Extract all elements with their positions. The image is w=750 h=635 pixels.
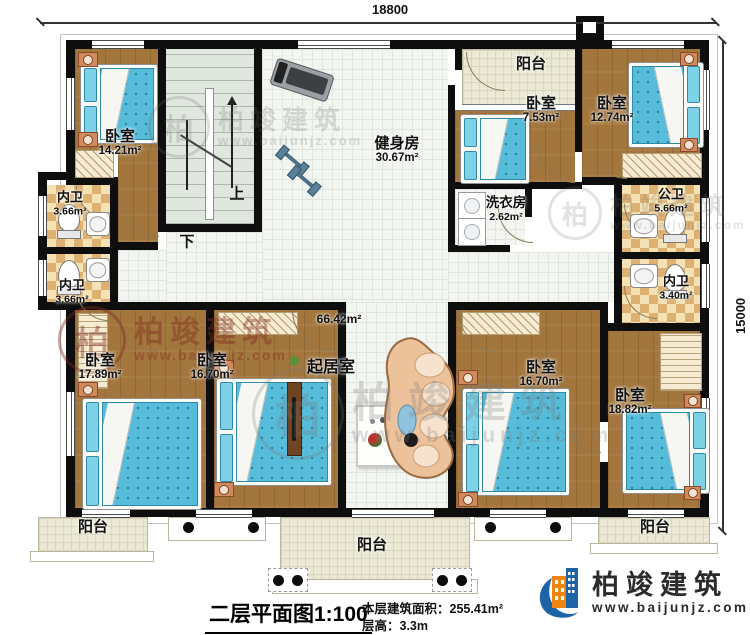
floor-plan-canvas: 卧室 14.21m² 健身房 30.67m² 阳台 卧室 7.53m² 卧室 1… <box>0 0 750 635</box>
room-label-gym: 健身房 30.67m² <box>374 135 419 165</box>
dimension-height: 15000 <box>733 298 748 334</box>
room-label-bedroom-bottom-midleft: 卧室 16.70m² <box>191 352 234 382</box>
plan-title: 二层平面图1:100 <box>205 598 372 634</box>
column-icon <box>550 522 561 533</box>
nightstand <box>684 394 701 408</box>
balcony-bottom-right-step <box>590 543 718 554</box>
bed <box>460 114 530 184</box>
wall <box>600 462 608 508</box>
room-label-bedroom-top-right: 卧室 12.74m² <box>591 95 634 125</box>
sink-icon <box>630 214 658 238</box>
wall <box>575 40 582 152</box>
closet <box>218 312 298 335</box>
dimension-width: 18800 <box>372 2 408 17</box>
closet <box>622 153 702 178</box>
brand-site: www.baijunjz.com <box>592 600 749 615</box>
window <box>490 509 546 518</box>
dimension-line-top <box>40 22 716 24</box>
room-label-balcony-bottom-center: 阳台 <box>357 536 387 553</box>
room-label-laundry: 洗衣房 2.62m² <box>486 195 527 223</box>
nightstand <box>680 138 698 152</box>
window <box>701 198 710 242</box>
porch-column-pair <box>432 568 472 592</box>
room-label-bedroom-bottom-right: 卧室 18.82m² <box>609 387 652 417</box>
dimension-line-right <box>722 40 724 532</box>
wall <box>110 185 118 302</box>
room-label-living: 起居室 <box>307 359 355 377</box>
room-label-bedroom-top-mid: 卧室 7.53m² <box>523 95 559 125</box>
porch-column-pair <box>268 568 308 592</box>
room-label-bedroom-bottom-left: 卧室 17.89m² <box>79 352 122 382</box>
sink-icon <box>630 264 658 288</box>
room-label-living-area: 66.42m² <box>317 313 362 327</box>
wall <box>66 177 118 185</box>
person-head <box>404 433 418 447</box>
wall <box>455 40 462 70</box>
window <box>38 260 47 296</box>
nightstand <box>78 132 98 147</box>
wall <box>448 245 510 252</box>
window <box>196 509 252 518</box>
room-label-bath-left-upper: 内卫 3.66m² <box>53 191 86 218</box>
wall <box>614 259 622 323</box>
window <box>92 40 144 49</box>
floor-height-text: 层高：3.3m <box>362 615 428 634</box>
floor-hall-left <box>118 250 166 302</box>
room-label-bath-right: 内卫 3.40m² <box>659 275 692 302</box>
plant-icon <box>289 356 299 366</box>
brand-logo-icon <box>538 566 584 620</box>
balcony-bottom-left-step <box>30 551 154 562</box>
brand-name: 柏竣建筑 <box>592 571 749 599</box>
wall <box>158 40 166 232</box>
bed <box>216 378 332 486</box>
room-label-balcony-bottom-right: 阳台 <box>640 518 670 535</box>
window <box>628 509 684 518</box>
wall <box>614 185 622 252</box>
patio-door <box>352 509 434 518</box>
nightstand <box>78 382 98 397</box>
brand-logo: 柏竣建筑 www.baijunjz.com <box>538 566 749 620</box>
nightstand <box>78 52 98 67</box>
wall <box>206 310 214 508</box>
wall <box>338 302 346 508</box>
person-body <box>398 405 416 435</box>
wall <box>600 323 709 331</box>
wall <box>254 40 262 232</box>
bed <box>628 62 704 148</box>
bed <box>462 388 570 496</box>
stairs-up-label: 上 <box>229 183 244 204</box>
nightstand <box>458 370 478 385</box>
wall <box>448 302 608 310</box>
window <box>66 392 75 456</box>
wall <box>582 177 709 185</box>
room-label-balcony-bottom-left: 阳台 <box>78 518 108 535</box>
room-label-balcony-top: 阳台 <box>516 55 546 72</box>
wall <box>614 252 709 259</box>
washer-icon <box>458 218 486 246</box>
nightstand <box>680 52 698 66</box>
chimney-inner <box>583 22 596 33</box>
nightstand <box>458 492 478 507</box>
wall <box>118 242 158 250</box>
closet <box>660 333 702 391</box>
window <box>612 40 684 49</box>
room-label-bath-left-lower: 内卫 3.66m² <box>55 279 88 306</box>
floor-hall-right <box>448 252 614 302</box>
room-label-bedroom-top-left: 卧室 14.21m² <box>99 128 142 158</box>
stairs-down-label: 下 <box>179 231 194 252</box>
column-icon <box>183 522 194 533</box>
wall <box>47 247 110 254</box>
wall <box>158 224 262 232</box>
tv-cabinet <box>287 382 302 456</box>
room-label-bedroom-bottom-midright: 卧室 16.70m² <box>520 359 563 389</box>
sofa <box>380 334 462 486</box>
stair-arrow-head <box>227 96 237 105</box>
column-icon <box>248 522 259 533</box>
window <box>298 40 390 49</box>
window <box>701 264 710 308</box>
stair-arrow-down <box>186 120 188 190</box>
washer-icon <box>458 192 486 220</box>
window <box>38 196 47 236</box>
nightstand <box>214 482 234 497</box>
sink-icon <box>86 258 110 282</box>
window <box>82 509 130 518</box>
room-label-bath-public: 公卫 5.66m² <box>654 188 687 215</box>
bed <box>622 408 710 494</box>
column-icon <box>485 522 496 533</box>
window <box>66 78 75 130</box>
wall <box>600 302 608 422</box>
stair-arrow-up <box>231 100 233 188</box>
nightstand <box>684 486 701 500</box>
sink-icon <box>86 212 110 236</box>
bed <box>82 398 202 510</box>
wall <box>448 85 455 245</box>
